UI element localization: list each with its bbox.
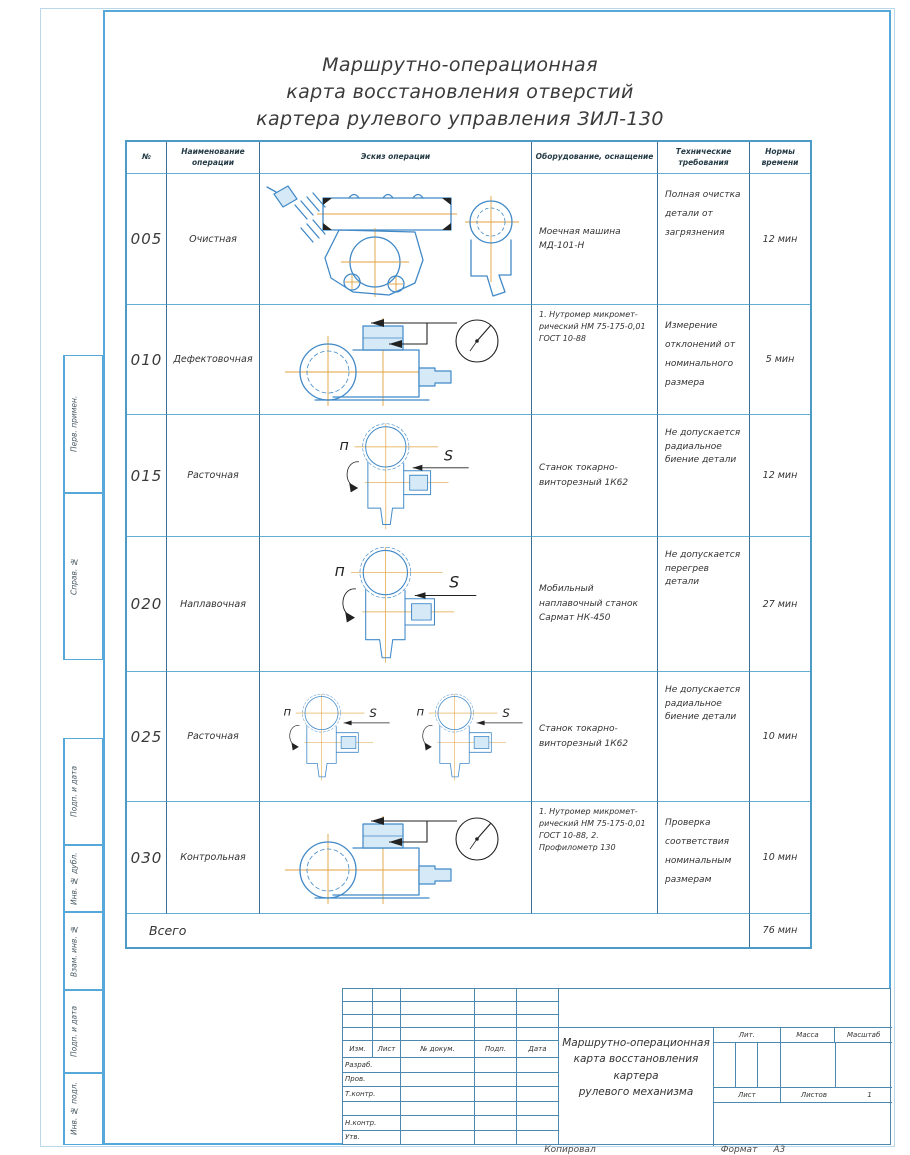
doc-title-line: рулевого механизма — [559, 1084, 713, 1100]
op-name: Наплавочная — [167, 537, 260, 672]
op-name: Дефектовочная — [167, 305, 260, 415]
col-header-time: Нормы времени — [750, 142, 810, 174]
op-sketch-inspection — [260, 305, 532, 415]
title-block-revision-grid: Изм. Лист № докум. Подп. Дата Разраб. Пр… — [343, 989, 559, 1144]
sig-utv: Утв. — [343, 1131, 401, 1145]
op-sketch-boring-final: п S п S — [260, 672, 532, 802]
page-title: Маршрутно-операционная карта восстановле… — [150, 52, 770, 133]
total-label: Всего — [127, 914, 750, 947]
op-number: 025 — [127, 672, 167, 802]
format-label: Формат — [721, 1145, 758, 1155]
page-title-line: Маршрутно-операционная — [150, 52, 770, 79]
format-label-group: Формат А3 — [688, 1145, 818, 1155]
rotation-label: п — [340, 437, 349, 453]
op-requirements: Измерение отклонений от номинального раз… — [658, 305, 750, 415]
op-name: Контрольная — [167, 802, 260, 914]
dial-indicator-icon — [456, 818, 498, 860]
op-number: 015 — [127, 415, 167, 537]
hdr-data: Дата — [517, 1041, 558, 1058]
margin-label: Перв. примен. — [64, 356, 83, 492]
total-time: 76 мин — [750, 914, 810, 947]
col-header-equipment: Оборудование, оснащение — [532, 142, 658, 174]
doc-title-line: Маршрутно-операционная — [559, 1035, 713, 1051]
op-equipment: 1. Нутромер микромет- рический НМ 75-175… — [532, 305, 658, 415]
op-time: 27 мин — [750, 537, 810, 672]
title-block-right-section: Лит. Масса Масштаб Лист Листов 1 — [713, 1028, 892, 1146]
sheets-value: 1 — [867, 1091, 871, 1099]
op-sketch-cleaning — [260, 174, 532, 305]
margin-label: Взам. инв. № — [64, 913, 83, 989]
housing-top-view — [317, 195, 457, 231]
op-time: 5 мин — [750, 305, 810, 415]
feed-label: S — [502, 705, 510, 719]
margin-box-inv-dubl: Инв. № дубл. — [63, 845, 103, 912]
margin-box-perv-primen: Перв. примен. — [63, 355, 103, 493]
op-requirements: Не допускается перегрев детали — [658, 537, 750, 672]
lit-header: Лит. — [714, 1028, 781, 1043]
sketch-cleaning — [265, 178, 527, 300]
page-title-line: карта восстановления отверстий — [150, 79, 770, 106]
sig-nkontr: Н.контр. — [343, 1116, 401, 1131]
sheets-cell: Листов 1 — [781, 1088, 892, 1103]
hdr-list: Лист — [373, 1041, 401, 1058]
page-title-line: картера рулевого управления ЗИЛ-130 — [150, 106, 770, 133]
sketch-boring-left: п S — [265, 691, 394, 783]
sig-razrab: Разраб. — [343, 1058, 401, 1073]
title-block: Изм. Лист № докум. Подп. Дата Разраб. Пр… — [342, 988, 891, 1145]
housing-side-view — [465, 196, 519, 296]
title-block-designation-cell — [559, 989, 892, 1028]
hdr-dokum: № докум. — [401, 1041, 475, 1058]
mass-value-cell — [781, 1043, 836, 1088]
spray-gun-icon — [267, 186, 325, 242]
drawing-sheet: Перв. примен. Справ. № Подп. и дата Инв.… — [0, 0, 910, 1155]
sig-tkontr: Т.контр. — [343, 1087, 401, 1102]
housing-front-view — [325, 228, 423, 297]
sketch-boring-right: п S — [398, 691, 527, 783]
op-equipment: 1. Нутромер микромет- рический НМ 75-175… — [532, 802, 658, 914]
op-sketch-surfacing: п S — [260, 537, 532, 672]
rotation-label: п — [283, 704, 291, 718]
sheets-label: Листов — [801, 1091, 827, 1099]
sketch-surfacing: п S — [310, 543, 482, 666]
margin-label: Справ. № — [64, 494, 83, 659]
op-requirements: Не допускается радиальное биение детали — [658, 672, 750, 802]
op-name: Очистная — [167, 174, 260, 305]
op-sketch-boring: п S — [260, 415, 532, 537]
margin-box-vzam-inv: Взам. инв. № — [63, 912, 103, 990]
margin-label: Инв. № подл. — [64, 1074, 83, 1144]
lit-boxes — [714, 1043, 781, 1088]
col-header-num: № — [127, 142, 167, 174]
op-requirements: Проверка соответствия номинальным размер… — [658, 802, 750, 914]
op-name: Расточная — [167, 672, 260, 802]
hdr-izm: Изм. — [343, 1041, 373, 1058]
sketch-control-dial — [271, 808, 521, 908]
scale-header: Масштаб — [835, 1028, 892, 1043]
op-requirements: Не допускается радиальное биение детали — [658, 415, 750, 537]
col-header-requirements: Технические требования — [658, 142, 750, 174]
op-equipment: Мобильный наплавочный станок Сармат НК-4… — [532, 537, 658, 672]
sig-prov: Пров. — [343, 1073, 401, 1088]
op-number: 010 — [127, 305, 167, 415]
margin-box-sprav: Справ. № — [63, 493, 103, 660]
margin-label: Подп. и дата — [64, 739, 83, 844]
op-equipment: Станок токарно-винторезный 1К62 — [532, 672, 658, 802]
copied-label: Копировал — [500, 1145, 640, 1155]
hdr-podp: Подп. — [475, 1041, 517, 1058]
sheet-cell: Лист — [714, 1088, 781, 1103]
operations-table: № Наименование операции Эскиз операции О… — [125, 140, 812, 949]
op-number: 005 — [127, 174, 167, 305]
rotation-label: п — [334, 561, 344, 579]
op-number: 030 — [127, 802, 167, 914]
feed-label: S — [369, 705, 377, 719]
sketch-boring: п S — [317, 420, 474, 532]
doc-title: Маршрутно-операционная карта восстановле… — [559, 1028, 713, 1100]
margin-label: Инв. № дубл. — [64, 846, 83, 911]
format-value: А3 — [773, 1145, 785, 1155]
op-equipment: Станок токарно-винторезный 1К62 — [532, 415, 658, 537]
col-header-sketch: Эскиз операции — [260, 142, 532, 174]
op-time: 10 мин — [750, 672, 810, 802]
op-time: 10 мин — [750, 802, 810, 914]
op-name: Расточная — [167, 415, 260, 537]
doc-title-line: карта восстановления картера — [559, 1051, 713, 1084]
op-equipment: Моечная машина МД-101-Н — [532, 174, 658, 305]
scale-value-cell — [836, 1043, 892, 1088]
mass-header: Масса — [781, 1028, 836, 1043]
op-time: 12 мин — [750, 174, 810, 305]
op-sketch-control — [260, 802, 532, 914]
title-block-doc-title-cell: Маршрутно-операционная карта восстановле… — [559, 1028, 713, 1146]
rotation-label: п — [416, 704, 424, 718]
margin-box-inv-podl: Инв. № подл. — [63, 1073, 103, 1145]
margin-box-podp-data-1: Подп. и дата — [63, 738, 103, 845]
op-number: 020 — [127, 537, 167, 672]
feed-label: S — [449, 573, 459, 591]
organization-cell — [714, 1103, 892, 1146]
op-time: 12 мин — [750, 415, 810, 537]
feed-label: S — [444, 448, 453, 464]
col-header-operation: Наименование операции — [167, 142, 260, 174]
margin-label: Подп. и дата — [64, 991, 83, 1072]
dial-indicator-icon — [456, 320, 498, 362]
margin-box-podp-data-2: Подп. и дата — [63, 990, 103, 1073]
sketch-dial-measurement — [271, 310, 521, 410]
op-requirements: Полная очистка детали от загрязнения — [658, 174, 750, 305]
